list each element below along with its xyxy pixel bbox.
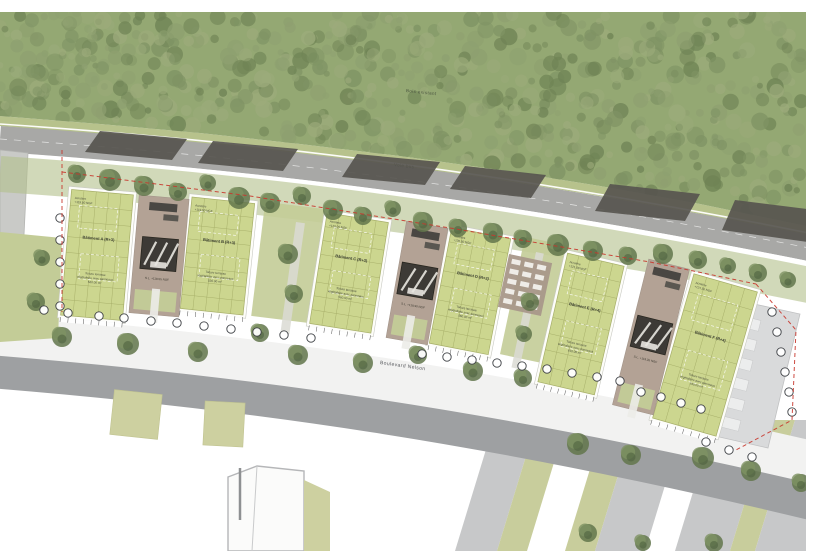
tree-icon <box>567 433 589 455</box>
dimension-circle <box>443 353 451 361</box>
tree-icon <box>134 176 154 196</box>
tree-icon <box>278 244 298 264</box>
dimension-circle <box>768 308 776 316</box>
dimension-circle <box>785 388 793 396</box>
tree-icon <box>483 223 503 243</box>
tree-icon <box>228 187 250 209</box>
dimension-circle <box>40 306 48 314</box>
building-a: Acrotère+119.50 NGFBâtiment A (R+3)Toitu… <box>57 186 137 327</box>
dimension-circle <box>227 325 235 333</box>
site-plan-canvas: Acrotère+119.50 NGFBâtiment A (R+3)Toitu… <box>0 0 815 551</box>
dimension-circle <box>120 314 128 322</box>
building-b: Acrotère+119.50 NGFBâtiment B (R+3)Toitu… <box>177 194 258 323</box>
dimension-circle <box>593 373 601 381</box>
green-plot-square <box>110 390 162 440</box>
dimension-circle <box>657 393 665 401</box>
tree-icon <box>188 342 208 362</box>
tree-icon <box>653 244 673 264</box>
page-margin-top <box>0 0 815 9</box>
dimension-circle <box>781 368 789 376</box>
dimension-circle <box>147 317 155 325</box>
tree-icon <box>353 353 373 373</box>
dimension-circle <box>777 348 785 356</box>
dimension-circle <box>56 236 64 244</box>
tree-icon <box>52 327 72 347</box>
tree-icon <box>692 447 714 469</box>
tree-icon <box>260 193 280 213</box>
tree-icon <box>117 333 139 355</box>
dimension-circle <box>773 328 781 336</box>
tree-icon <box>621 445 641 465</box>
dimension-circle <box>280 331 288 339</box>
green-plot-square <box>203 401 245 447</box>
dimension-circle <box>418 350 426 358</box>
dimension-circle <box>543 365 551 373</box>
dimension-circle <box>637 388 645 396</box>
dimension-circle <box>677 399 685 407</box>
dimension-circle <box>95 312 103 320</box>
tree-icon <box>741 461 761 481</box>
lawn-west <box>0 232 62 342</box>
dimension-circle <box>468 356 476 364</box>
dimension-circle <box>64 309 72 317</box>
tree-icon <box>413 212 433 232</box>
dimension-circle <box>253 328 261 336</box>
dimension-circle <box>493 359 501 367</box>
tree-icon <box>583 241 603 261</box>
dimension-circle <box>748 453 756 461</box>
dimension-circle <box>518 362 526 370</box>
green-wedge <box>304 480 330 551</box>
dimension-circle <box>173 319 181 327</box>
dimension-circle <box>702 438 710 446</box>
tree-icon <box>288 345 308 365</box>
dimension-circle <box>697 405 705 413</box>
page-margin-right <box>806 0 815 551</box>
courtyard-1: S.L. +118.55 NGF <box>128 195 189 325</box>
dimension-circle <box>56 302 64 310</box>
tree-icon <box>99 169 121 191</box>
dimension-circle <box>200 322 208 330</box>
site-plan-drawing: Acrotère+119.50 NGFBâtiment A (R+3)Toitu… <box>0 0 815 551</box>
dimension-circle <box>725 446 733 454</box>
dimension-circle <box>307 334 315 342</box>
dimension-circle <box>616 377 624 385</box>
dimension-circle <box>56 258 64 266</box>
dimension-circle <box>568 369 576 377</box>
dimension-circle <box>56 214 64 222</box>
dimension-circle <box>56 280 64 288</box>
